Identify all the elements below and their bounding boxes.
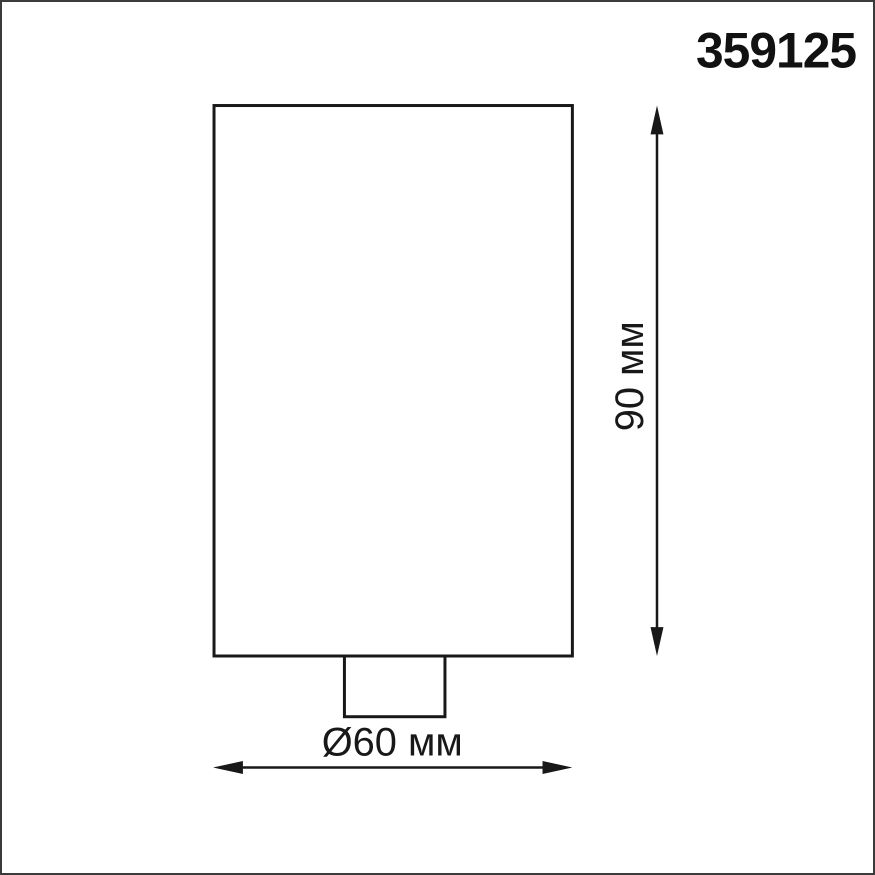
diameter-dimension-label: Ø60 мм [322,721,463,765]
height-dimension-label: 90 мм [608,321,652,431]
diagram-svg: 359125 90 мм Ø60 мм [2,2,873,873]
product-code: 359125 [696,23,856,79]
arrowhead-right-icon [543,761,573,774]
arrowhead-down-icon [651,627,664,656]
height-dimension: 90 мм [608,106,663,656]
product-dimension-diagram: 359125 90 мм Ø60 мм [0,0,875,875]
arrowhead-up-icon [651,106,664,135]
fixture-base-outline [344,656,445,717]
fixture-body-outline [214,106,572,656]
arrowhead-left-icon [213,761,243,774]
diameter-dimension: Ø60 мм [213,721,572,774]
